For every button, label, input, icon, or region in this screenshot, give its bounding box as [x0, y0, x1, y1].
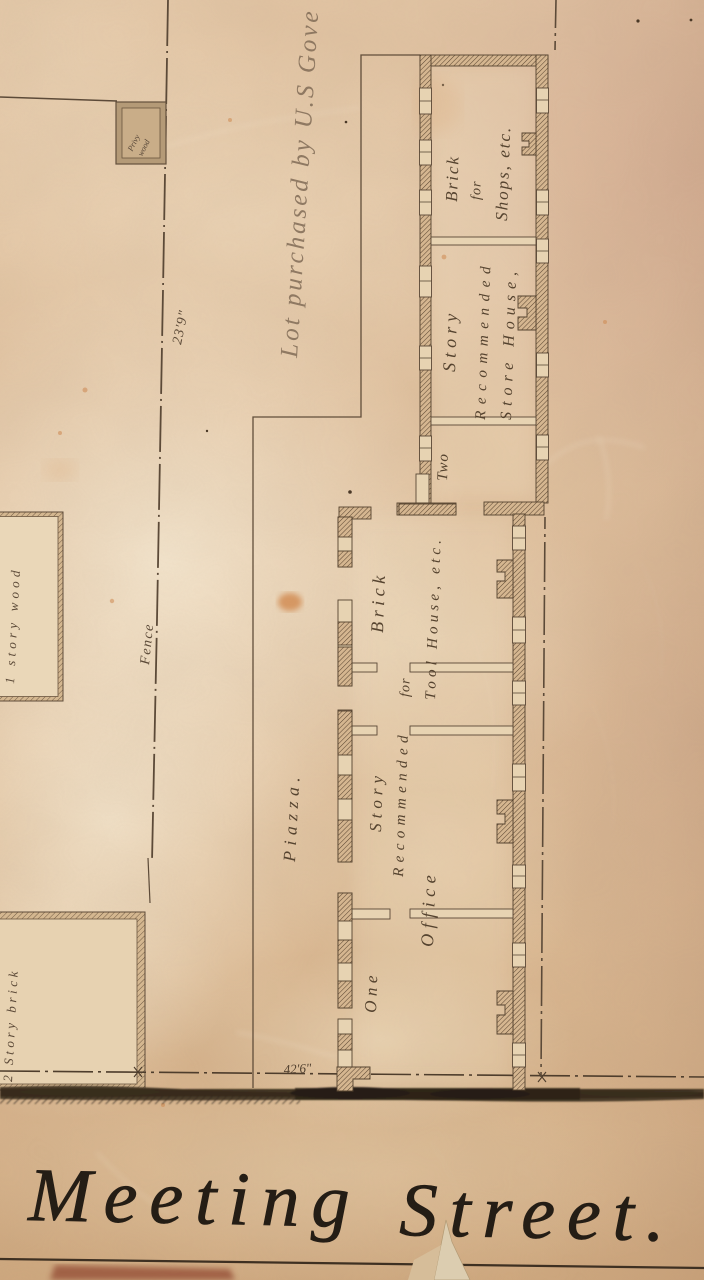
svg-text:for: for [469, 180, 485, 200]
svg-text:Street.: Street. [399, 1168, 678, 1258]
svg-text:for: for [398, 677, 414, 697]
svg-text:One: One [361, 971, 381, 1013]
svg-text:42'6": 42'6" [283, 1060, 312, 1077]
svg-text:Two: Two [435, 453, 452, 481]
svg-text:Office: Office [417, 870, 440, 948]
svg-text:Meeting: Meeting [27, 1153, 363, 1244]
svg-text:Story: Story [366, 771, 387, 833]
svg-text:Story: Story [439, 308, 461, 372]
svg-text:Brick: Brick [367, 571, 389, 633]
svg-text:Shops, etc.: Shops, etc. [492, 125, 514, 221]
svg-text:Brick: Brick [442, 155, 463, 202]
